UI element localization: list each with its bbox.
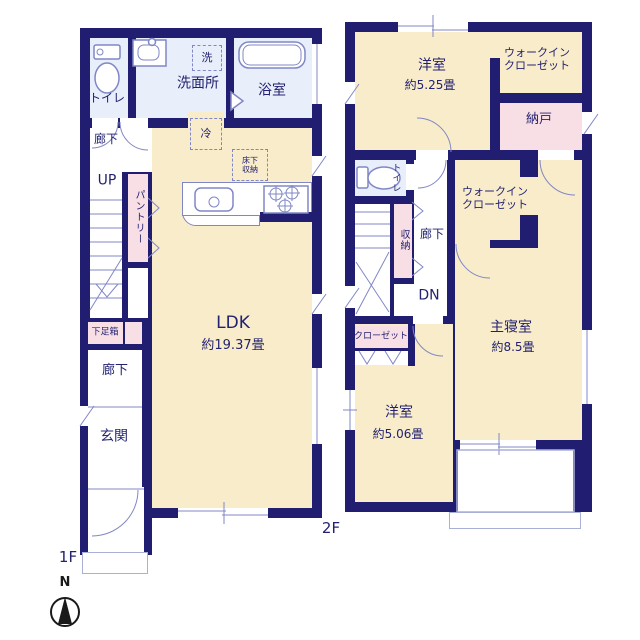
f2-window-north: [398, 22, 468, 32]
f2-stairs-area: [355, 204, 390, 316]
f2-window-master: [582, 330, 592, 404]
f1-ldk-label: LDK: [216, 313, 250, 333]
f1-genkan-label: 玄関: [100, 429, 128, 446]
f1-up-label: UP: [98, 173, 117, 190]
floor-plan-canvas: 洗 冷 床下 収納 トイレ 洗面所 浴室 廊下 UP パントリー LDK 約19…: [0, 0, 640, 640]
f2-toilet-door-gap: [406, 164, 414, 190]
f1-kitchen-wall-stub: [260, 212, 312, 222]
f2-dn-label: DN: [418, 288, 439, 305]
f2-passage: [538, 160, 582, 248]
f1-room-toilet: [90, 38, 128, 118]
f2-closet-label: クローゼット: [354, 332, 408, 343]
f2-closet-wall-stub: [408, 324, 415, 366]
f1-stairs-area: [90, 172, 122, 318]
f2-vent-west-2: [345, 286, 355, 308]
f2-closet-door-strip: [355, 351, 408, 365]
compass-north-label: N: [60, 575, 71, 591]
f2-bedroom-b-label: 洋室: [385, 405, 413, 422]
f2-master-size-label: 約8.5畳: [491, 340, 534, 354]
compass-icon: [51, 597, 79, 626]
f2-window-balcony: [460, 440, 536, 450]
f2-balcony-step: [449, 512, 581, 529]
washer-box: 洗: [192, 45, 222, 71]
f1-washroom-label: 洗面所: [177, 76, 219, 93]
f2-hall-label: 廊下: [420, 227, 444, 241]
f2-storeroom-label: 納戸: [526, 112, 552, 128]
f2-bedroom-a-label: 洋室: [418, 58, 446, 75]
f1-porch: [82, 552, 148, 574]
f1-toilet-door-gap: [92, 118, 118, 128]
f1-entry-bay: [88, 487, 144, 555]
f1-washroom-door-gap: [120, 118, 148, 128]
fridge-box: 冷: [190, 118, 222, 150]
fridge-label: 冷: [201, 128, 212, 141]
f2-bedroom-a-door-gap: [416, 150, 448, 160]
f2-balcony: [458, 450, 573, 512]
f2-toilet-label: トイレ: [390, 163, 401, 193]
f1-ldk-size-label: 約19.37畳: [201, 338, 264, 354]
f1-toilet-label: トイレ: [89, 91, 125, 105]
f2-wic-a-label-2: クローゼット: [504, 59, 570, 72]
f1-room-bath: [234, 38, 312, 118]
f2-window-bedroom-b: [345, 390, 355, 430]
f2-master-door-gap: [455, 240, 490, 248]
f1-pantry-lower: [128, 268, 148, 318]
f1-window-ldk-south: [178, 508, 268, 518]
f1-vent-east-2: [312, 294, 322, 314]
f2-bedroom-b-door-gap: [413, 316, 443, 324]
f1-shoe-cabinet-label: 下足箱: [91, 328, 118, 339]
f2-wic-b-label-2: クローゼット: [462, 198, 528, 211]
f2-vent-storeroom: [582, 112, 592, 134]
f1-pantry-label: パントリー: [132, 190, 144, 245]
underfloor-storage-label-2: 収納: [242, 165, 258, 174]
f2-master-label: 主寝室: [490, 320, 532, 337]
f2-bedroom-b-size-label: 約5.06畳: [373, 427, 424, 441]
f2-wic-a-label-1: ウォークイン: [504, 46, 570, 59]
underfloor-storage-box: 床下 収納: [232, 149, 268, 181]
f2-floor-label: 2F: [322, 519, 340, 537]
f2-storage-label: 収納: [397, 229, 409, 251]
f1-kitchen-counter: [182, 182, 312, 216]
f2-vent-west-1: [345, 82, 355, 104]
f2-wic-door-gap: [538, 150, 574, 160]
f2-wic-b-label: ウォークイン クローゼット: [462, 185, 528, 211]
f1-hall-lower-label: 廊下: [102, 363, 128, 379]
underfloor-storage-label-1: 床下: [242, 156, 258, 165]
f1-floor-label: 1F: [59, 548, 77, 566]
f2-wic-a-label: ウォークイン クローゼット: [504, 46, 570, 72]
f1-bath-label: 浴室: [258, 83, 286, 100]
f2-wic-a-opening: [490, 32, 500, 58]
f2-storage-below: [394, 284, 414, 316]
washer-label: 洗: [202, 52, 213, 65]
f1-window-bath: [312, 44, 322, 104]
f2-bedroom-a-size-label: 約5.25畳: [405, 78, 456, 92]
f2-wic-b-label-1: ウォークイン: [462, 185, 528, 198]
f1-hall-upper-label: 廊下: [94, 132, 118, 146]
f1-vent-genkan: [80, 406, 88, 426]
f1-window-ldk-east: [312, 368, 322, 444]
f1-vent-east-1: [312, 156, 322, 176]
